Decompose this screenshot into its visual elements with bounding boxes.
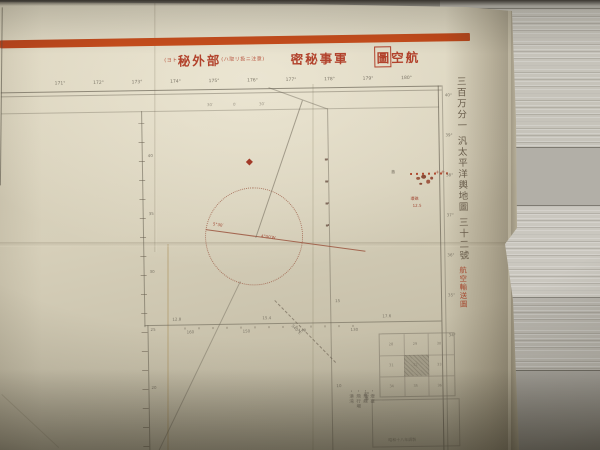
parallel-tick-label: 12.8 [172,317,181,322]
index-cell-label: 32 [413,363,418,367]
title-boxed-char: 圖 [374,46,391,67]
longitude-tick-label: 176° [247,78,258,83]
island-red-label: 環礁 [410,196,418,202]
longitude-tick-label: 178° [324,77,335,82]
island-dot [426,180,430,184]
photo-scene: (ヨト秘外部(ハ取リ扱ニ注意)密秘事軍圖空航 5°30′ [0,0,600,450]
legend-item: ・港湾 [347,389,354,450]
island-dot [421,175,426,179]
legend-item: ・無線 [361,389,368,450]
island-dot [419,183,422,185]
meridian-tick-label: 25 [150,327,155,332]
frame-inner-line [1,106,439,114]
legend-item: ・飛行場 [354,389,361,450]
index-cell-label: 29 [413,342,418,346]
classification-segment: 秘外部 [178,49,222,69]
longitude-tick-label: 175° [209,79,220,84]
compass-north-marker [246,158,253,165]
scale-tick-label: 160 [187,329,195,334]
index-cell-label: 36 [437,383,442,387]
meridian-tick-label: 20 [151,385,156,390]
classification-segment: (ハ取リ扱ニ注意) [221,55,265,63]
route-line [157,281,240,450]
meridian-tick-label: 30 [150,269,155,274]
index-cell-label: 35 [413,384,418,388]
legend-item: ・燈臺 [368,389,375,450]
parallel-tick-label: 17.6 [382,313,391,318]
meridian-tick-label: 35 [149,211,154,216]
meridian-tick-label: 15 [335,298,340,303]
island-edge-marks: + + [435,169,445,175]
longitude-tick-label: 179° [363,77,374,82]
minute-tick-label: 0′ [233,102,237,107]
index-cell-label: 31 [389,363,394,367]
index-cell-label: 28 [389,342,394,346]
island-name-label: 島 [391,169,395,175]
island-dot [416,177,420,180]
meridian-tick-label: 10 [336,383,341,388]
index-cell-label: 33 [437,362,442,366]
index-cell-label: 34 [389,384,394,388]
note-box-text: 昭和十八年調製 [388,437,416,443]
index-cell-label: 30 [437,341,442,345]
classification-segment: 空航 [391,46,420,65]
meridian-tick-label: 40 [148,153,153,158]
minute-tick-label: 30′ [207,102,213,107]
map-sheet-paper: (ヨト秘外部(ハ取リ扱ニ注意)密秘事軍圖空航 5°30′ [0,0,600,450]
longitude-tick-label: 174° [170,80,181,85]
longitude-tick-label: 180° [401,76,412,81]
scale-tick-label: 150 [243,328,251,333]
longitude-tick-label: 172° [93,81,104,86]
classification-segment: (ヨト [164,56,178,63]
meridian-tick-marks [138,123,149,447]
legend-column: ・燈臺・無線・飛行場・港湾 [346,389,375,450]
classification-segment: 密秘事軍 [290,47,348,67]
longitude-tick-label: 177° [286,78,297,83]
meridian-line [327,108,333,450]
longitude-tick-label: 173° [132,80,143,85]
scale-tick-label: 140 [298,328,306,333]
paper-edge-shadow [445,0,520,450]
classification-title-row: (ヨト秘外部(ハ取リ扱ニ注意)密秘事軍圖空航 [164,46,474,69]
island-dot [430,177,433,180]
island-red-value: 12.5 [413,203,422,208]
longitude-tick-label: 171° [55,81,66,86]
parallel-tick-label: 15.4 [262,315,271,320]
scale-tick-label: 130 [350,327,358,332]
minute-tick-label: 30′ [259,101,265,106]
